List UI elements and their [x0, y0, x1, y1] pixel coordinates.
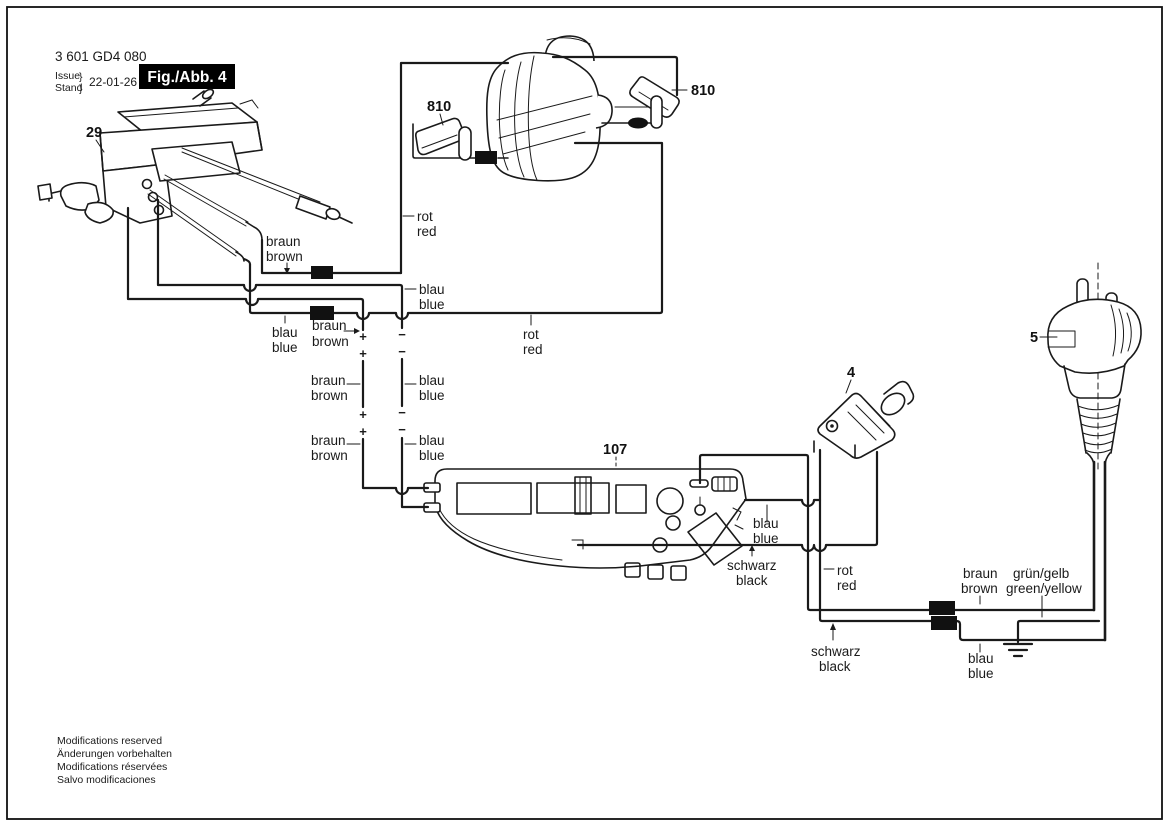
wire-label-blue: blue — [419, 297, 445, 312]
footer: Modifications reserved Änderungen vorbeh… — [57, 735, 172, 786]
wire-label-brown: brown — [266, 249, 303, 264]
minus-sign: − — [398, 405, 406, 420]
minus-sign: − — [398, 344, 406, 359]
wire-label-schwarz: schwarz — [727, 558, 777, 573]
wire-label-blue: blue — [419, 388, 445, 403]
minus-sign: − — [398, 327, 406, 342]
wire-label-braun: braun — [311, 373, 346, 388]
stand-brace: } — [79, 83, 83, 95]
footer-line-1: Modifications reserved — [57, 735, 162, 747]
polarity-signs: + + − − + + − − — [359, 327, 406, 439]
wire-label-rot: rot — [523, 327, 539, 342]
issue-brace: } — [79, 71, 83, 83]
wire-label-red: red — [417, 224, 437, 239]
ferrite-splice-lower — [931, 616, 957, 630]
part-number: 3 601 GD4 080 — [55, 49, 147, 64]
header: 3 601 GD4 080 Issue Stand } } 22-01-26 F… — [55, 49, 235, 95]
wiring-diagram: 3 601 GD4 080 Issue Stand } } 22-01-26 F… — [0, 0, 1169, 826]
wire-label-brown: brown — [311, 448, 348, 463]
brush-right-spring — [651, 96, 662, 128]
switch-29-pictorial: 29 — [38, 88, 352, 261]
plus-sign: + — [359, 346, 367, 361]
wire-label-blue: blue — [419, 448, 445, 463]
wire-label-braun: braun — [311, 433, 346, 448]
plug-5-label: 5 — [1030, 330, 1038, 346]
plug-5-pictorial: 5 — [1030, 263, 1141, 470]
ferrite-braun — [311, 266, 333, 279]
wire-label-blue: blue — [272, 340, 298, 355]
wire-label-rot: rot — [417, 209, 433, 224]
wire-label-green-yellow: green/yellow — [1006, 581, 1082, 596]
footer-line-2: Änderungen vorbehalten — [57, 748, 172, 760]
ferrite-brush-left — [475, 151, 497, 164]
plus-sign: + — [359, 329, 367, 344]
minus-sign: − — [398, 422, 406, 437]
wire-label-braun: braun — [266, 234, 301, 249]
footer-line-4: Salvo modificaciones — [57, 774, 156, 786]
wire-label-blau: blau — [419, 433, 445, 448]
connector-4-pictorial: 4 — [814, 365, 913, 458]
footer-line-3: Modifications réservées — [57, 761, 167, 773]
issue-label: Issue — [55, 70, 80, 82]
earth-ground-symbol — [1004, 644, 1032, 656]
plus-sign: + — [359, 424, 367, 439]
wire-label-blue: blue — [968, 666, 994, 681]
wire-label-gruen-gelb: grün/gelb — [1013, 566, 1069, 581]
ferrite-brush-right — [628, 118, 648, 129]
wire-gruen-gelb-earth — [1018, 621, 1099, 642]
figure-label: Fig./Abb. 4 — [147, 69, 227, 86]
wire-label-braun: braun — [963, 566, 998, 581]
wire-label-red: red — [837, 578, 857, 593]
wire-label-black: black — [736, 573, 768, 588]
wire-label-brown: brown — [961, 581, 998, 596]
wire-label-brown: brown — [311, 388, 348, 403]
plus-sign: + — [359, 407, 367, 422]
wire-label-blue: blue — [753, 531, 779, 546]
wire-rot-armature-right — [244, 143, 662, 319]
connector-4-label: 4 — [847, 365, 855, 381]
switch-29-label: 29 — [86, 125, 102, 141]
wire-label-blau: blau — [968, 651, 994, 666]
wire-label-brown: brown — [312, 334, 349, 349]
wire-label-blau: blau — [419, 373, 445, 388]
wire-label-red: red — [523, 342, 543, 357]
wire-label-schwarz: schwarz — [811, 644, 861, 659]
wire-label-blau: blau — [272, 325, 298, 340]
ferrite-splice-upper — [929, 601, 955, 615]
wiring-diagram-page: 3 601 GD4 080 Issue Stand } } 22-01-26 F… — [0, 0, 1169, 826]
module-107-label: 107 — [603, 442, 627, 458]
brush-left-spring — [459, 127, 471, 160]
brush-right-810-label: 810 — [691, 83, 715, 99]
wire-label-black: black — [819, 659, 851, 674]
connector-4-leader — [846, 380, 851, 393]
wire-label-rot: rot — [837, 563, 853, 578]
brush-left-810-label: 810 — [427, 99, 451, 115]
wire-label-blau: blau — [419, 282, 445, 297]
wire-label-braun: braun — [312, 318, 347, 333]
wire-label-blau: blau — [753, 516, 779, 531]
issue-date: 22-01-26 — [89, 75, 137, 89]
module-107-pictorial: 107 — [424, 442, 746, 580]
